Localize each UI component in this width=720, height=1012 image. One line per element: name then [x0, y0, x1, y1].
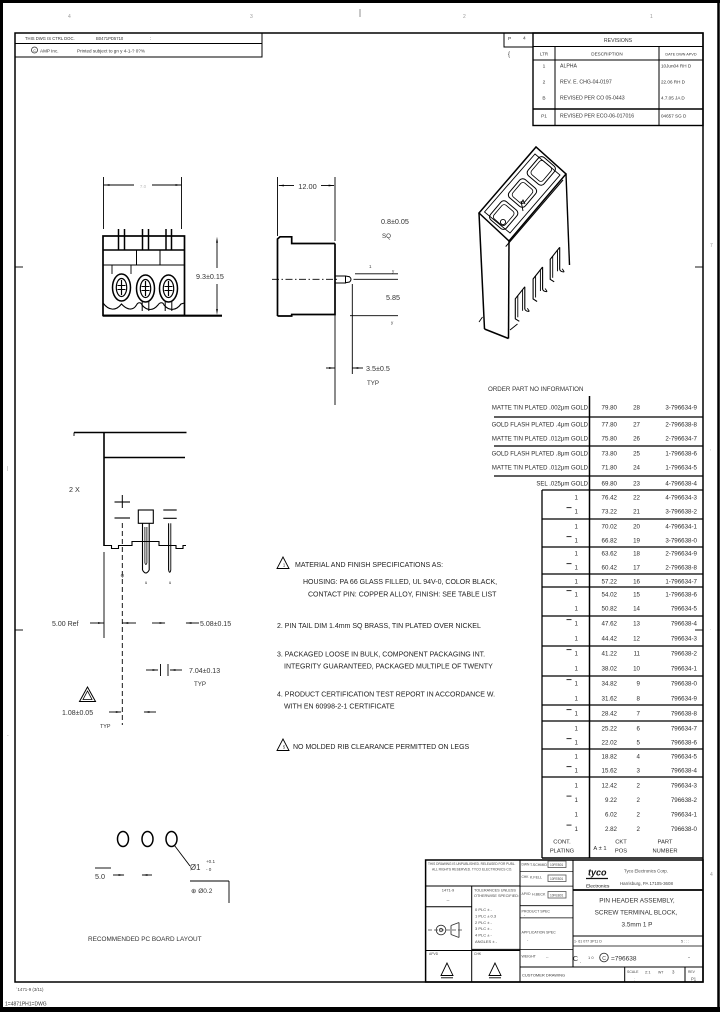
svg-text:WITH EN 60998-2-1 CERTIFICATE: WITH EN 60998-2-1 CERTIFICATE: [284, 704, 395, 711]
svg-text:1: 1: [575, 767, 579, 774]
svg-text:1: 1: [575, 665, 579, 672]
svg-text:TYP: TYP: [194, 681, 206, 688]
svg-text:C: C: [573, 956, 578, 963]
svg-text:1-796638-6: 1-796638-6: [665, 450, 697, 457]
svg-text:2.82: 2.82: [605, 826, 618, 833]
svg-text:11: 11: [634, 650, 641, 657]
svg-text:22.02: 22.02: [602, 739, 618, 746]
svg-text:P: P: [508, 36, 511, 42]
svg-text:1: 1: [575, 591, 579, 598]
svg-text:Harrisburg, PA 17105-3608: Harrisburg, PA 17105-3608: [620, 881, 673, 886]
svg-text:44.42: 44.42: [602, 635, 618, 642]
svg-text:SCALE: SCALE: [627, 970, 639, 974]
svg-text:7: 7: [710, 243, 713, 249]
svg-text:CONTACT PIN: COPPER ALLOY, FIN: CONTACT PIN: COPPER ALLOY, FINISH: SEE T…: [308, 592, 497, 599]
svg-text:10FEB01: 10FEB01: [550, 877, 564, 881]
svg-text:796634-3: 796634-3: [671, 782, 698, 789]
svg-text:,: ,: [710, 446, 711, 452]
svg-text:5: 5: [637, 739, 641, 746]
svg-text:796638-4: 796638-4: [671, 620, 698, 627]
svg-text:796634-1: 796634-1: [671, 811, 698, 818]
svg-text:A ± 1: A ± 1: [593, 846, 606, 852]
svg-text:27: 27: [633, 421, 640, 428]
svg-text:4-796634-1: 4-796634-1: [665, 523, 697, 530]
svg-text:CKT: CKT: [615, 840, 627, 846]
svg-text:`1471-9 (3/11): `1471-9 (3/11): [16, 987, 44, 992]
svg-text:INTEGRITY GUARANTEED, PACKAGED: INTEGRITY GUARANTEED, PACKAGED MULTIPLE …: [284, 664, 493, 671]
svg-text:22.06 RH D: 22.06 RH D: [661, 80, 686, 85]
svg-text:76.42: 76.42: [602, 494, 618, 501]
svg-text:1: 1: [575, 620, 579, 627]
svg-text:796634-7: 796634-7: [671, 725, 698, 732]
svg-text:1: 1: [575, 550, 579, 557]
svg-text:MATTE TIN PLATED .012μm GOLD: MATTE TIN PLATED .012μm GOLD: [492, 436, 589, 442]
svg-text:2. PIN TAIL DIM 1.4mm SQ BRAS: 2. PIN TAIL DIM 1.4mm SQ BRASS, TIN PLAT…: [277, 623, 481, 630]
svg-text:7.0: 7.0: [140, 184, 147, 189]
svg-text:CUSTOMER DRAWING: CUSTOMER DRAWING: [522, 973, 565, 978]
svg-text:60.42: 60.42: [602, 564, 618, 571]
svg-text:2:1: 2:1: [645, 970, 651, 975]
svg-text:Printed subject to gn y 4-1-?: Printed subject to gn y 4-1-? 0?%: [77, 48, 145, 53]
svg-text:REVISIONS: REVISIONS: [604, 38, 633, 44]
svg-text:4: 4: [637, 753, 641, 760]
svg-text:P1: P1: [541, 114, 547, 120]
svg-text:PRODUCT SPEC: PRODUCT SPEC: [522, 910, 551, 914]
svg-text:2-796638-8: 2-796638-8: [665, 564, 697, 571]
svg-text:4-796634-3: 4-796634-3: [665, 494, 697, 501]
svg-text:TYP: TYP: [367, 380, 379, 387]
svg-text:P1: P1: [691, 977, 697, 982]
svg-text:4-796638-4: 4-796638-4: [665, 480, 697, 487]
svg-text:12.00: 12.00: [298, 182, 317, 191]
svg-text:.: .: [580, 959, 581, 965]
svg-text:34.82: 34.82: [602, 680, 618, 687]
svg-text:T.SCHMID: T.SCHMID: [530, 863, 547, 867]
svg-text:73.22: 73.22: [602, 508, 618, 515]
svg-text:1: 1: [575, 695, 579, 702]
svg-text:CHK: CHK: [474, 952, 482, 956]
svg-text:3: 3: [250, 14, 253, 20]
svg-text:796638-2: 796638-2: [671, 797, 698, 804]
svg-text:5.0: 5.0: [95, 872, 105, 881]
svg-text:25: 25: [633, 450, 640, 457]
svg-text:H.BECK: H.BECK: [532, 893, 546, 897]
svg-text:13: 13: [633, 620, 640, 627]
svg-text:796638-0: 796638-0: [671, 680, 698, 687]
svg-text:1471-9: 1471-9: [442, 888, 455, 893]
svg-text:796634-5: 796634-5: [671, 753, 698, 760]
svg-text:10FEB01: 10FEB01: [550, 863, 564, 867]
svg-text:POS: POS: [615, 849, 627, 855]
svg-text:5 : : :: 5 : : :: [681, 940, 689, 944]
svg-text:ALPHA: ALPHA: [560, 64, 578, 70]
svg-text:1: 1: [575, 494, 579, 501]
svg-text:2 X: 2 X: [69, 485, 80, 494]
svg-text:41.22: 41.22: [602, 650, 618, 657]
svg-text:OTHERWISE SPECIFIED:: OTHERWISE SPECIFIED:: [474, 894, 519, 898]
svg-text:2 PLC ± -: 2 PLC ± -: [475, 920, 493, 925]
svg-text:796634-1: 796634-1: [671, 665, 698, 672]
svg-text:796638-0: 796638-0: [671, 826, 698, 833]
svg-text:38.02: 38.02: [602, 665, 618, 672]
svg-text:1: 1: [575, 650, 579, 657]
svg-text:1: 1: [575, 811, 579, 818]
svg-text:TYP: TYP: [100, 724, 111, 730]
svg-text:2-796638-8: 2-796638-8: [665, 421, 697, 428]
svg-text:|: |: [7, 466, 8, 472]
svg-text:23: 23: [633, 480, 640, 487]
svg-text:1: 1: [575, 564, 579, 571]
svg-text:3.5±0.5: 3.5±0.5: [366, 364, 390, 373]
svg-text:THIS DWG IS CTRL DOC.: THIS DWG IS CTRL DOC.: [25, 36, 75, 41]
svg-text:1: 1: [543, 64, 546, 70]
svg-text:7.04±0.13: 7.04±0.13: [189, 668, 220, 675]
svg-text:4 PLC ± -: 4 PLC ± -: [475, 933, 493, 938]
svg-text:MATERIAL AND FINISH SPECIFICAT: MATERIAL AND FINISH SPECIFICATIONS AS:: [295, 562, 443, 569]
svg-text:1: 1: [575, 537, 579, 544]
svg-text:GOLD FLASH PLATED .8μm GOLD: GOLD FLASH PLATED .8μm GOLD: [492, 451, 589, 457]
svg-text:WEIGHT: WEIGHT: [522, 955, 537, 959]
svg-text:SEL .025μm GOLD: SEL .025μm GOLD: [536, 481, 588, 487]
svg-text:796634-3: 796634-3: [671, 635, 698, 642]
svg-text:4. PRODUCT CERTIFICATION TEST: 4. PRODUCT CERTIFICATION TEST REPORT IN …: [277, 692, 495, 699]
svg-text:1: 1: [650, 14, 653, 20]
svg-text:⊕ Ø0.2: ⊕ Ø0.2: [191, 888, 213, 895]
svg-text:PART: PART: [658, 840, 673, 846]
svg-text:26: 26: [633, 435, 640, 442]
svg-text:47.62: 47.62: [602, 620, 618, 627]
svg-text:18.82: 18.82: [602, 753, 618, 760]
svg-text:NO MOLDED RIB CLEARANCE PERMIT: NO MOLDED RIB CLEARANCE PERMITTED ON LEG…: [293, 744, 470, 751]
svg-text:1 0: 1 0: [588, 955, 594, 960]
svg-text:3 PLC ± -: 3 PLC ± -: [475, 926, 493, 931]
svg-text:28: 28: [633, 404, 640, 411]
svg-text:PIN HEADER ASSEMBLY,: PIN HEADER ASSEMBLY,: [599, 898, 675, 905]
svg-text:796634-5: 796634-5: [671, 605, 698, 612]
svg-text:1-796634-5: 1-796634-5: [665, 464, 697, 471]
svg-text:APVD: APVD: [522, 892, 532, 896]
svg-text:1: 1: [575, 508, 579, 515]
svg-text:THIS DRAWING IS UNPUBLISHED. R: THIS DRAWING IS UNPUBLISHED. RELEASED FO…: [428, 862, 515, 866]
svg-text:TOLERANCES UNLESS: TOLERANCES UNLESS: [474, 889, 516, 893]
svg-text:1: 1: [575, 782, 579, 789]
svg-text:REV. E. CHG-04-0197: REV. E. CHG-04-0197: [560, 80, 612, 86]
svg-text:796638-2: 796638-2: [671, 650, 698, 657]
svg-text:9: 9: [637, 680, 641, 687]
svg-text:796638-6: 796638-6: [671, 739, 698, 746]
svg-text:10: 10: [633, 665, 640, 672]
svg-text:Electronics: Electronics: [586, 884, 610, 890]
svg-text:REVISED PER ECO-06-017016: REVISED PER ECO-06-017016: [560, 114, 634, 120]
svg-text:CONT.: CONT.: [553, 840, 571, 846]
svg-text:1.08±0.05: 1.08±0.05: [62, 710, 93, 717]
svg-text:2: 2: [637, 782, 641, 789]
svg-text:54.02: 54.02: [602, 591, 618, 598]
svg-text:9.22: 9.22: [605, 797, 618, 804]
svg-text:REV: REV: [688, 970, 696, 974]
svg-text:B: B: [542, 96, 545, 102]
svg-text:APPLICATION SPEC: APPLICATION SPEC: [522, 931, 557, 935]
svg-text:2: 2: [637, 811, 641, 818]
svg-text:SCREW TERMINAL BLOCK,: SCREW TERMINAL BLOCK,: [595, 910, 678, 917]
svg-text:ORDER PART NO INFORMATION: ORDER PART NO INFORMATION: [488, 386, 583, 393]
svg-text:B0471PD5710: B0471PD5710: [96, 36, 124, 41]
svg-text:15: 15: [633, 591, 640, 598]
svg-text:2-796634-7: 2-796634-7: [665, 435, 697, 442]
svg-text:69.80: 69.80: [602, 480, 618, 487]
svg-text:6.02: 6.02: [605, 811, 618, 818]
svg-text:4: 4: [710, 872, 713, 878]
svg-text:MATTE TIN PLATED .012μm GOLD: MATTE TIN PLATED .012μm GOLD: [492, 465, 589, 471]
svg-text:CHK: CHK: [522, 875, 530, 879]
svg-text:63.62: 63.62: [602, 550, 618, 557]
svg-text:3. PACKAGED LOOSE IN BULK, COM: 3. PACKAGED LOOSE IN BULK, COMPONENT PAC…: [277, 652, 485, 659]
svg-text:70.02: 70.02: [602, 523, 618, 530]
svg-text:MATTE TIN PLATED .002μm GOLD: MATTE TIN PLATED .002μm GOLD: [492, 405, 589, 411]
svg-text:1: 1: [575, 605, 579, 612]
svg-text:1: 1: [575, 725, 579, 732]
svg-text:AMP Inc.: AMP Inc.: [40, 48, 59, 53]
svg-text:1=4871PH1=DWG: 1=4871PH1=DWG: [5, 1002, 47, 1008]
svg-text:6: 6: [637, 725, 641, 732]
svg-text:1: 1: [575, 753, 579, 760]
svg-text:DESCRIPTION: DESCRIPTION: [591, 52, 622, 57]
svg-text:1: 1: [575, 797, 579, 804]
svg-text:16: 16: [633, 578, 640, 585]
svg-text:57.22: 57.22: [602, 578, 618, 585]
svg-text:RECOMMENDED PC BOARD LAYOUT: RECOMMENDED PC BOARD LAYOUT: [88, 936, 202, 943]
svg-text:1: 1: [575, 523, 579, 530]
svg-text:04657 SG D: 04657 SG D: [661, 114, 687, 119]
svg-text:50.82: 50.82: [602, 605, 618, 612]
svg-text:K.FELL: K.FELL: [530, 876, 542, 880]
svg-text:24: 24: [633, 464, 640, 471]
svg-text:3: 3: [637, 767, 641, 774]
svg-text:0 PLC ± -: 0 PLC ± -: [475, 907, 493, 912]
svg-text:2: 2: [463, 14, 466, 20]
svg-text:NUMBER: NUMBER: [652, 849, 677, 855]
svg-text:ALL RIGHTS RESERVED. TYCO ELEC: ALL RIGHTS RESERVED. TYCO ELECTRONICS CO…: [432, 868, 512, 872]
svg-text:-: -: [688, 955, 690, 961]
svg-text:SQ: SQ: [382, 233, 391, 240]
svg-text:21: 21: [633, 508, 640, 515]
svg-text:tyco: tyco: [588, 868, 607, 878]
svg-text:1: 1: [575, 826, 579, 833]
svg-text:3-796634-9: 3-796634-9: [665, 404, 697, 411]
svg-text:796638-4: 796638-4: [671, 767, 698, 774]
svg-text:Ø1: Ø1: [190, 863, 200, 872]
svg-text:Tyco Electronics Corp.: Tyco Electronics Corp.: [624, 869, 668, 874]
svg-text:796634-9: 796634-9: [671, 695, 698, 702]
svg-text:WT: WT: [658, 971, 664, 975]
svg-text:2: 2: [543, 80, 546, 86]
svg-text::: :: [634, 978, 635, 982]
svg-text:14: 14: [633, 605, 640, 612]
svg-text:1- 61 077 3P11 D: 1- 61 077 3P11 D: [574, 940, 602, 944]
svg-text:1: 1: [575, 635, 579, 642]
svg-text:DWN: DWN: [522, 863, 530, 867]
svg-text:3-796638-2: 3-796638-2: [665, 508, 697, 515]
svg-text:20: 20: [633, 523, 640, 530]
svg-text:1: 1: [575, 680, 579, 687]
svg-text::: :: [150, 36, 151, 41]
svg-text:REVISED PER CO 05-0443: REVISED PER CO 05-0443: [560, 96, 625, 102]
svg-text:17: 17: [633, 564, 640, 571]
svg-text:DATE DWN APVD: DATE DWN APVD: [665, 53, 696, 57]
svg-text:77.80: 77.80: [602, 421, 618, 428]
svg-text:66.82: 66.82: [602, 537, 618, 544]
svg-text:75.80: 75.80: [602, 435, 618, 442]
svg-text:25.22: 25.22: [602, 725, 618, 732]
svg-text:1: 1: [575, 578, 579, 585]
svg-text:APVD: APVD: [429, 952, 439, 956]
svg-text:2: 2: [637, 826, 641, 833]
svg-text:C: C: [33, 49, 36, 53]
svg-text:18: 18: [633, 550, 640, 557]
svg-text:.: .: [710, 626, 711, 632]
svg-text:LTR: LTR: [540, 52, 548, 57]
svg-text:1: 1: [575, 710, 579, 717]
svg-text:ANGLES ± -: ANGLES ± -: [475, 939, 498, 944]
svg-text:C: C: [602, 956, 606, 962]
svg-text:12.42: 12.42: [602, 782, 618, 789]
svg-text:PLATING: PLATING: [550, 849, 575, 855]
svg-text:10Jun04 RH D: 10Jun04 RH D: [661, 64, 692, 69]
svg-text:HOUSING: PA 66 GLASS FILLED, U: HOUSING: PA 66 GLASS FILLED, UL 94V-0, C…: [303, 579, 497, 586]
svg-text:10FEB01: 10FEB01: [550, 894, 564, 898]
svg-text:9.3±0.15: 9.3±0.15: [196, 272, 224, 281]
svg-text:15.62: 15.62: [602, 767, 618, 774]
svg-text:4: 4: [68, 14, 71, 20]
svg-text:2-796634-9: 2-796634-9: [665, 550, 697, 557]
svg-text:+0.1: +0.1: [206, 859, 216, 864]
svg-text:5.08±0.15: 5.08±0.15: [200, 621, 231, 628]
svg-text:19: 19: [633, 537, 640, 544]
svg-text:3.5mm 1 P: 3.5mm 1 P: [622, 922, 653, 929]
svg-text:5.00 Ref: 5.00 Ref: [52, 621, 79, 628]
svg-text:7: 7: [637, 710, 641, 717]
svg-text:2: 2: [637, 797, 641, 804]
svg-text:1-796634-7: 1-796634-7: [665, 578, 697, 585]
svg-text:22: 22: [633, 494, 640, 501]
svg-text:5.85: 5.85: [386, 293, 400, 302]
svg-text:796638-8: 796638-8: [671, 710, 698, 717]
svg-text:0.8±0.05: 0.8±0.05: [381, 217, 409, 226]
svg-text:1: 1: [575, 739, 579, 746]
svg-text:28.42: 28.42: [602, 710, 618, 717]
svg-text:31.62: 31.62: [602, 695, 618, 702]
svg-text:79.80: 79.80: [602, 404, 618, 411]
svg-text:1 PLC ± 0.3: 1 PLC ± 0.3: [475, 913, 497, 918]
svg-text:GOLD FLASH PLATED .4μm GOLD: GOLD FLASH PLATED .4μm GOLD: [492, 422, 589, 428]
svg-text:71.80: 71.80: [602, 464, 618, 471]
svg-text:1-796638-6: 1-796638-6: [665, 591, 697, 598]
svg-text:4.7.05 JA D: 4.7.05 JA D: [661, 96, 685, 101]
svg-text:8: 8: [637, 695, 641, 702]
svg-text:{: {: [508, 52, 510, 58]
svg-text:12: 12: [633, 635, 640, 642]
svg-text:3-796638-0: 3-796638-0: [665, 537, 697, 544]
svg-text:73.80: 73.80: [602, 450, 618, 457]
svg-text:- 0: - 0: [206, 867, 212, 872]
svg-text:4: 4: [523, 36, 526, 42]
svg-text:=796638: =796638: [611, 956, 637, 963]
